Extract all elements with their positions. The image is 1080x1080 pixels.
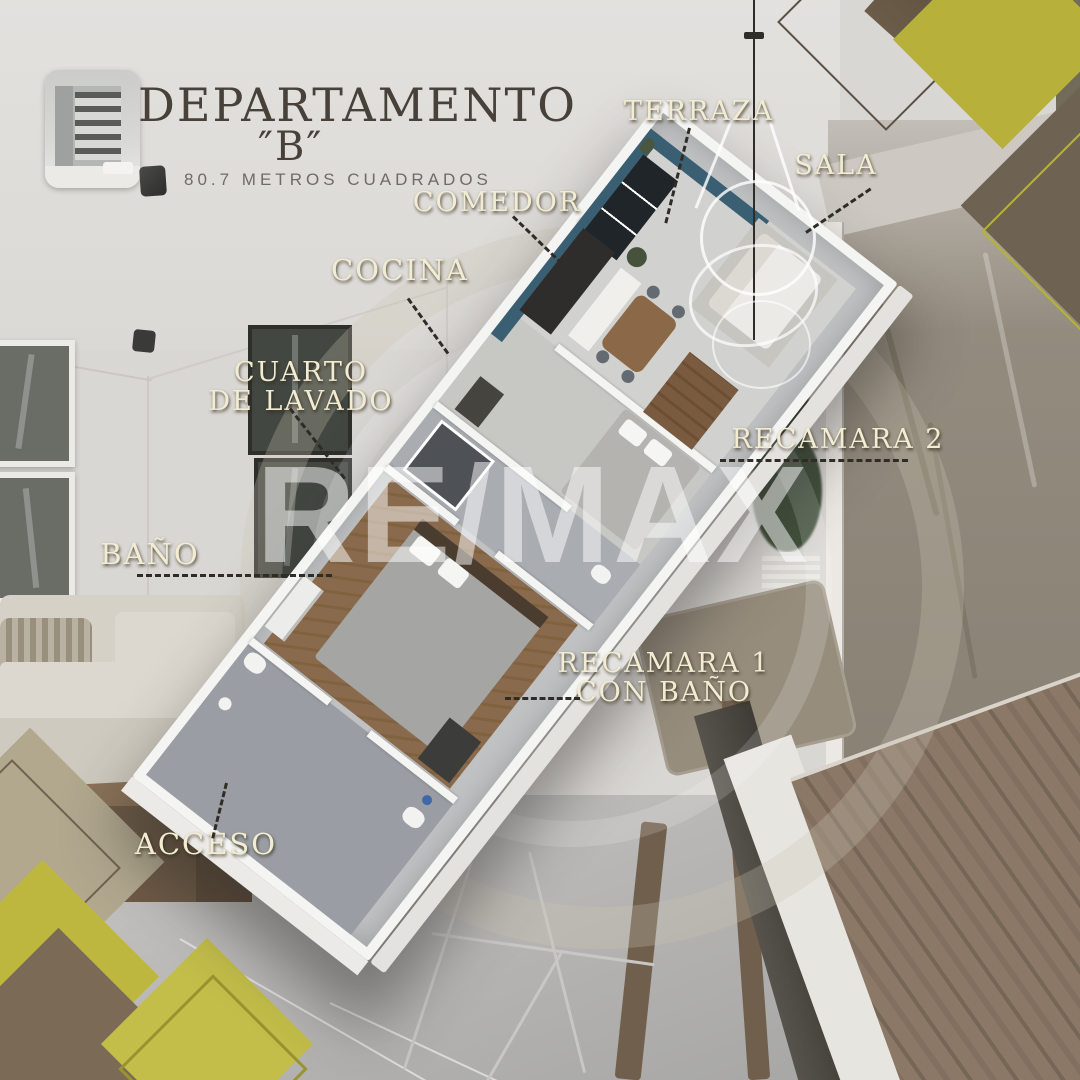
building-photo	[45, 70, 140, 188]
pointer-line-recamara-2	[720, 459, 908, 462]
pendant-fixture	[744, 32, 764, 39]
room-label-cocina: COCINA	[331, 256, 469, 285]
building-windows	[75, 92, 121, 160]
room-label-acceso: ACCESO	[135, 830, 277, 859]
flyer-canvas: RE/MAX DEPARTAMENTO ″B″ 80.7 METROS CUAD…	[0, 0, 1080, 1080]
room-label-text: SALA	[794, 150, 877, 181]
room-label-recamara-2: RECAMARA 2	[732, 425, 945, 454]
room-label-text: CUARTO	[234, 357, 368, 388]
room-label-comedor: COMEDOR	[413, 188, 581, 217]
room-label-text: COMEDOR	[413, 187, 581, 218]
flyer-unit: ″B″	[258, 124, 323, 170]
room-label-text: CON BAÑO	[558, 678, 771, 707]
room-label-text: RECAMARA 1	[558, 648, 771, 679]
room-label-text: ACCESO	[135, 827, 277, 861]
wall-corner-line	[147, 376, 149, 626]
room-label-terraza: TERRAZA	[624, 97, 774, 126]
room-label-text: RECAMARA 2	[732, 424, 945, 455]
building-truck	[103, 162, 133, 174]
room-label-sala: SALA	[794, 151, 877, 180]
building-side	[55, 86, 73, 166]
wall-art-frame	[0, 340, 75, 467]
room-label-text: BAÑO	[100, 537, 199, 571]
room-label-bano: BAÑO	[100, 540, 199, 569]
room-label-cuarto-de-lavado: CUARTODE LAVADO	[209, 358, 394, 416]
wall-art-frame	[0, 472, 75, 604]
ceiling-spotlight	[132, 329, 156, 353]
art-detail	[15, 354, 34, 449]
flyer-title: DEPARTAMENTO	[138, 78, 577, 132]
cube-icon	[139, 165, 167, 197]
pointer-line-bano	[137, 574, 332, 577]
room-label-recamara-1-con-bano: RECAMARA 1CON BAÑO	[558, 649, 771, 707]
room-label-text: DE LAVADO	[209, 387, 394, 416]
room-label-text: COCINA	[331, 253, 469, 287]
room-label-text: TERRAZA	[624, 96, 774, 127]
lamp-sketch-circle	[712, 300, 811, 389]
art-detail	[23, 488, 39, 588]
pointer-line-recamara-1	[505, 697, 580, 700]
